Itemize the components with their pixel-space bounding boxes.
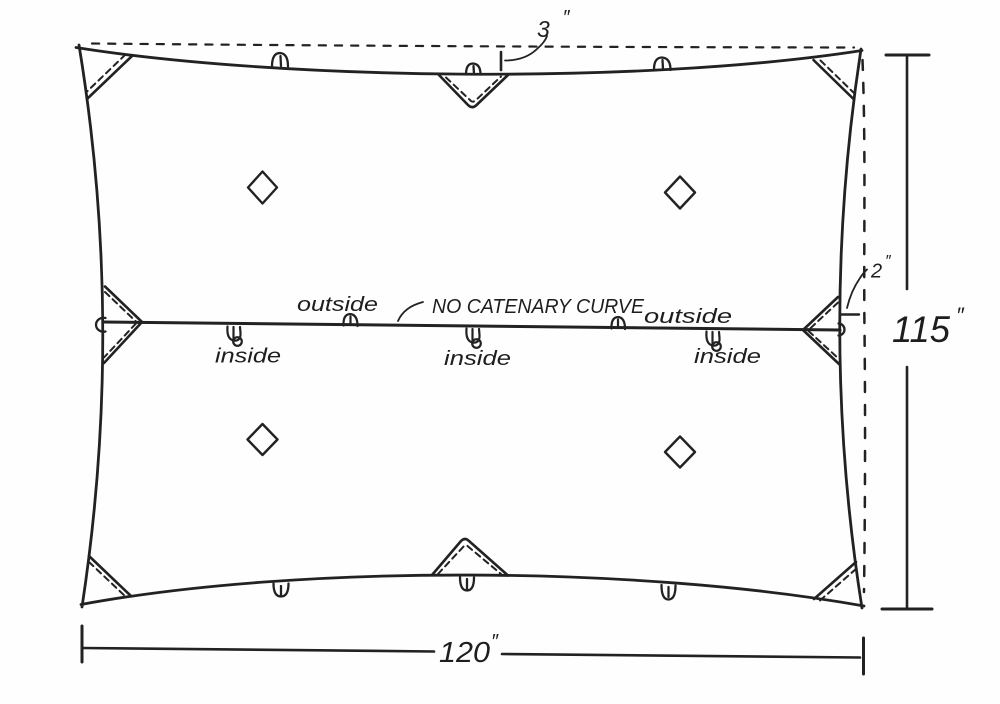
svg-text:″: ″ [491,631,499,653]
svg-text:outside: outside [297,294,378,316]
svg-text:outside: outside [644,306,732,328]
svg-text:120: 120 [439,637,490,669]
svg-text:″: ″ [956,303,965,328]
svg-text:3: 3 [537,16,550,42]
svg-text:inside: inside [444,348,511,370]
svg-text:NO CATENARY CURVE: NO CATENARY CURVE [432,296,645,318]
svg-text:″: ″ [563,7,571,29]
svg-text:115: 115 [892,309,950,350]
svg-text:inside: inside [694,346,761,368]
svg-text:inside: inside [215,346,281,368]
svg-text:2: 2 [870,261,882,283]
